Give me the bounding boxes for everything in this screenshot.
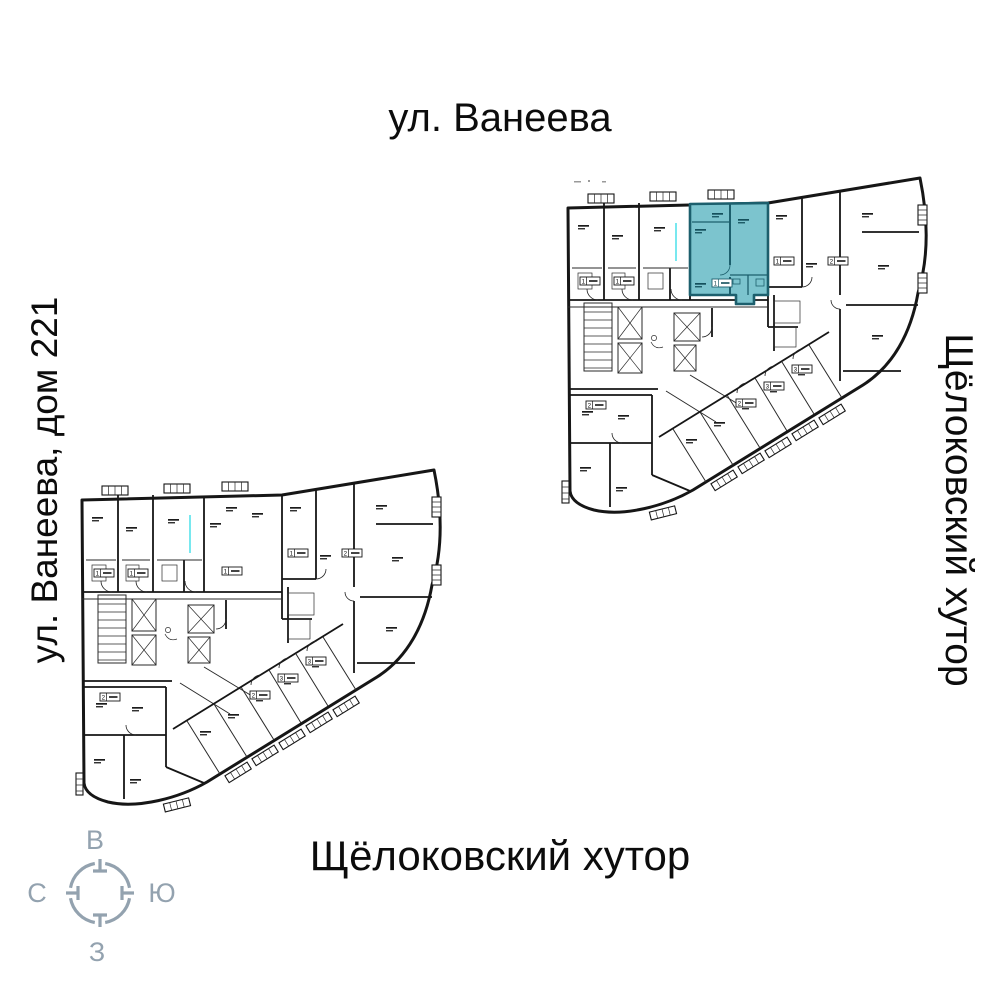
compass-letter-right: Ю: [148, 878, 175, 908]
compass-letter-bottom: З: [89, 937, 105, 967]
unit-badge: 2: [266, 82, 286, 90]
highlighted-apartment[interactable]: 1: [690, 203, 768, 304]
svg-text:3: 3: [204, 208, 208, 215]
unit-badge: 1: [18, 102, 38, 110]
svg-text:2: 2: [268, 83, 272, 90]
compass-circle: [66, 859, 134, 927]
unit-badge: 3: [230, 190, 250, 198]
stray-marks: [574, 180, 606, 183]
svg-text:1: 1: [714, 280, 718, 287]
unit-badge: 1: [212, 82, 232, 90]
unit-badge: 3: [202, 207, 222, 215]
svg-text:2: 2: [176, 225, 180, 232]
svg-text:3: 3: [232, 191, 236, 198]
svg-text:2: 2: [26, 227, 30, 234]
floor-plan-lower: [76, 467, 448, 813]
floor-plan-upper: 1: [562, 175, 934, 521]
unit-badge: 1: [52, 102, 72, 110]
compass-letter-left: С: [27, 878, 47, 908]
page: { "labels": { "street_top": "ул. Ванеева…: [0, 0, 1000, 1000]
highlight-unit-badge: 1: [712, 279, 732, 287]
floor-plan-drawing: 1 1 1 1 2 3 3 2 2: [0, 3, 365, 345]
street-label-right: Щёлоковский хутор: [932, 300, 980, 720]
unit-badge: 1: [146, 100, 166, 108]
compass: В Ю З С: [20, 823, 180, 963]
unit-badge: 2: [174, 224, 194, 232]
svg-text:1: 1: [148, 101, 152, 108]
svg-text:1: 1: [20, 103, 24, 110]
compass-letter-top: В: [86, 825, 104, 855]
svg-text:1: 1: [214, 83, 218, 90]
unit-badge: 2: [24, 226, 44, 234]
svg-text:1: 1: [54, 103, 58, 110]
